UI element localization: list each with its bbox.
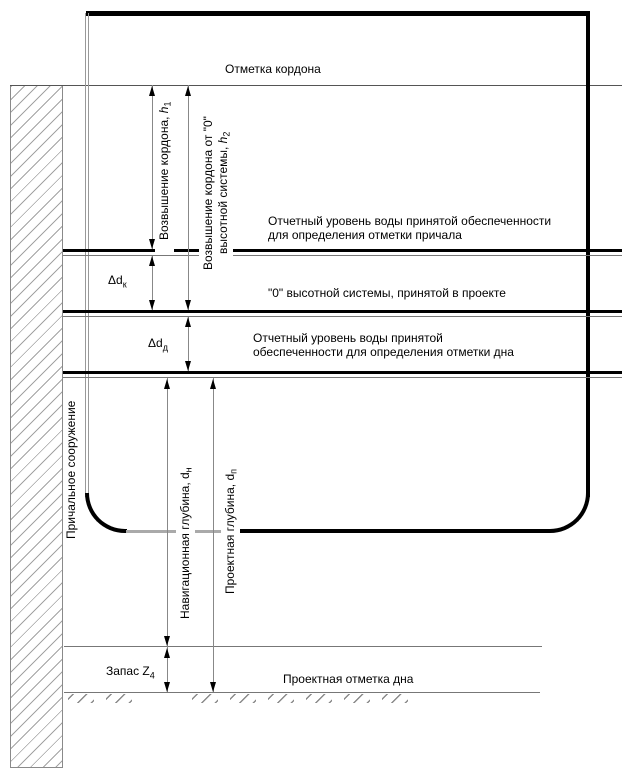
design-depth-label: Проектная глубина, dп [221,460,240,602]
ground-hatch-tick-group [382,694,408,703]
vessel-hull-bottom-right-curve [548,493,590,533]
ground-hatch-tick-group [192,694,218,703]
h1-dimension-label: Возвышение кордона, h1 [155,90,174,252]
vessel-hull-bottom-left-curve [85,493,127,533]
delta-dk-sub: к [123,279,127,289]
arrowhead-icon [164,636,170,646]
zero-system-text: "0" высотной системы, принятой в проекте [268,286,506,300]
water-level-line-berth [63,249,622,256]
design-bottom-mark-text: Проектная отметка дна [283,672,413,686]
h1-text: Возвышение кордона, [157,113,171,240]
berth-structure-label: Причальное сооружение [62,382,81,557]
bottom-water-level-text: Отчетный уровень воды принятой обеспечен… [253,331,514,359]
delta-dd-label: Δdд [146,336,170,350]
arrowhead-icon [164,682,170,692]
bottom-water-level-label: Отчетный уровень воды принятой обеспечен… [251,331,516,359]
dn-text: Навигационная глубина, d [178,472,192,619]
berth-water-level-label: Отчетный уровень воды принятой обеспечен… [266,214,553,242]
dimension-line-dn [167,378,168,646]
berth-structure-hatch [10,85,63,768]
ground-hatch-tick-group [306,694,332,703]
z4-text: Запас Z [106,664,150,678]
arrowhead-icon [185,361,191,371]
z4-margin-label: Запас Z4 [104,664,157,678]
dp-text: Проектная глубина, d [223,473,237,593]
water-level-line-bottom [63,371,622,378]
ground-hatch-tick-group [106,694,132,703]
h2-line1: Возвышение кордона от "0" [201,116,215,270]
dn-sub: н [183,467,193,472]
delta-dk-label: Δdк [106,273,129,287]
z4-sub: 4 [150,670,155,680]
zero-system-label: "0" высотной системы, принятой в проекте [266,286,508,300]
vessel-hull-bottom-line [238,529,550,533]
h1-var: h [157,107,171,114]
design-bottom-mark-label: Проектная отметка дна [281,672,415,686]
design-bottom-line [64,692,540,693]
cordon-mark-label: Отметка кордона [223,62,323,76]
ground-hatch-tick-group [68,694,94,703]
arrowhead-icon [149,256,155,266]
arrowhead-icon [210,682,216,692]
delta-dd-text: Δd [148,336,163,350]
berth-water-level-text: Отчетный уровень воды принятой обеспечен… [268,214,551,242]
ground-hatch-tick-group [230,694,256,703]
delta-dd-sub: д [163,342,168,352]
h2-line2: высотной системы, [216,144,230,255]
arrowhead-icon [149,300,155,310]
h2-dimension-label: Возвышение кордона от "0"высотной систем… [199,106,233,280]
dimension-line-h2 [188,85,189,310]
ground-hatch-tick-group [344,694,370,703]
arrowhead-icon [164,379,170,389]
h2-var: h [216,137,230,144]
berth-structure-text: Причальное сооружение [64,400,78,538]
dp-sub: п [228,469,238,474]
cordon-mark-text: Отметка кордона [225,62,321,76]
h1-sub: 1 [162,102,172,107]
arrowhead-icon [185,86,191,96]
arrowhead-icon [185,317,191,327]
delta-dk-text: Δd [108,273,123,287]
dimension-line-h1 [152,85,153,249]
arrowhead-icon [164,648,170,658]
arrowhead-icon [185,300,191,310]
zero-datum-line [63,310,622,317]
diagram-canvas: Отметка кордона Отчетный уровень воды пр… [0,0,622,770]
navigational-depth-label: Навигационная глубина, dн [176,460,195,626]
h2-sub: 2 [221,132,231,137]
arrowhead-icon [210,379,216,389]
ground-hatch-tick-group [268,694,294,703]
dimension-line-dp [213,378,214,692]
navigational-depth-line [64,646,542,647]
